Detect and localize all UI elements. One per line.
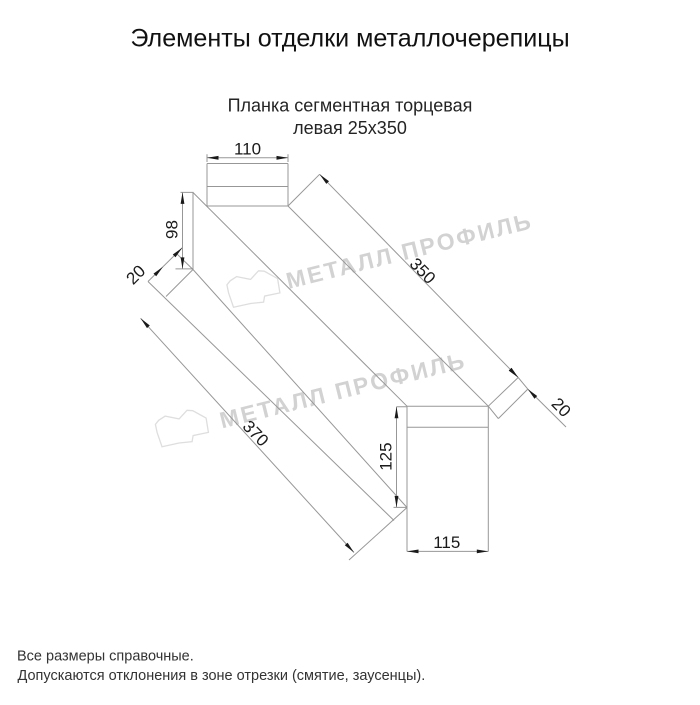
svg-text:Элементы отделки металлочерепи: Элементы отделки металлочерепицы <box>130 24 569 52</box>
svg-text:Все размеры справочные.: Все размеры справочные. <box>17 649 194 665</box>
svg-text:125: 125 <box>377 442 396 470</box>
svg-text:110: 110 <box>234 140 261 159</box>
svg-text:98: 98 <box>163 220 182 239</box>
svg-text:Планка сегментная торцевая: Планка сегментная торцевая <box>228 96 473 116</box>
svg-text:115: 115 <box>433 533 460 552</box>
svg-text:левая 25х350: левая 25х350 <box>293 118 407 138</box>
svg-text:Допускаются отклонения в зоне: Допускаются отклонения в зоне отрезки (с… <box>18 668 426 684</box>
